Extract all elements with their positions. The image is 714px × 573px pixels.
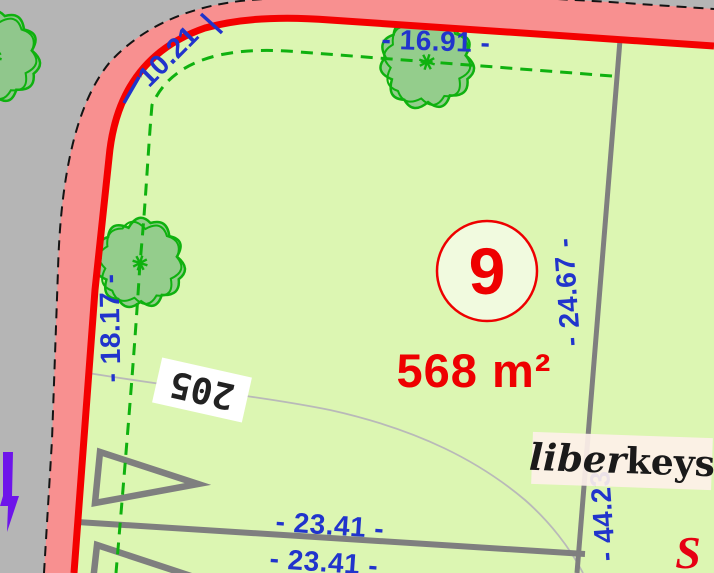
plan-canvas: 205 9 568 m² 10.21 - 16.91 - - 18.17 - -… bbox=[0, 0, 714, 573]
cadastral-plan-map: 205 9 568 m² 10.21 - 16.91 - - 18.17 - -… bbox=[0, 0, 714, 573]
watermark: liberkeys bbox=[528, 432, 714, 490]
plot-area-label: 568 m² bbox=[397, 344, 552, 397]
watermark-script-part: liber bbox=[528, 435, 629, 482]
watermark-logo: liberkeys bbox=[528, 435, 714, 485]
plot-number: 9 bbox=[469, 234, 506, 308]
watermark-bold-part: keys bbox=[625, 440, 714, 485]
dimension-north: - 16.91 - bbox=[381, 24, 491, 59]
street-name-fragment: S bbox=[675, 527, 701, 573]
dimension-west: - 18.17 - bbox=[94, 273, 127, 382]
